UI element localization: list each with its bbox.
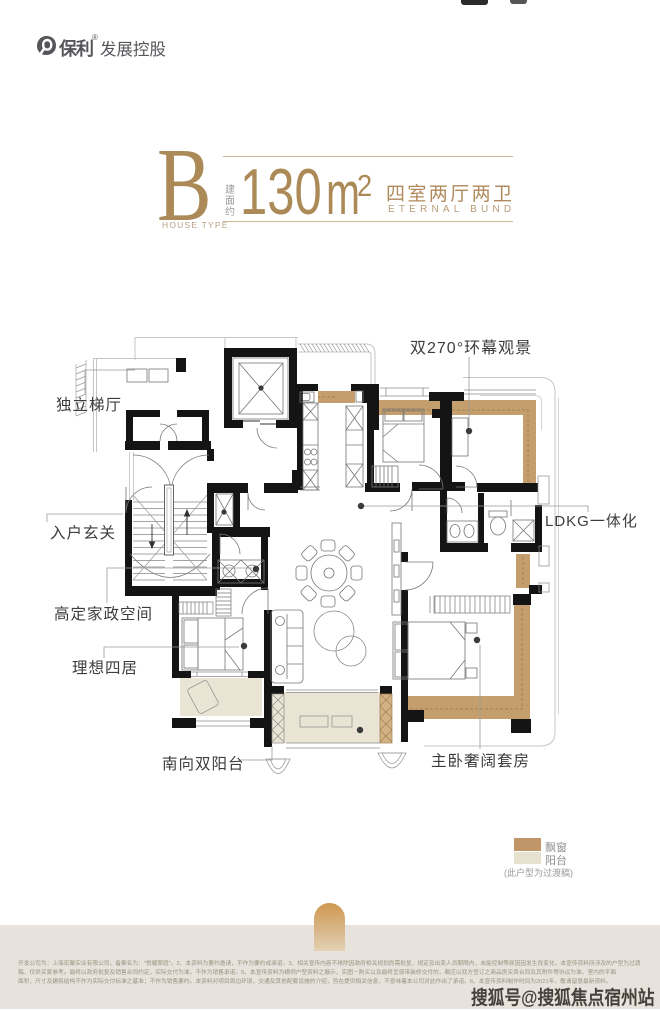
svg-text:南向双阳台: 南向双阳台 — [162, 755, 245, 773]
svg-text:主卧奢阔套房: 主卧奢阔套房 — [431, 752, 530, 770]
svg-text:理想四居: 理想四居 — [72, 659, 138, 677]
svg-text:高定家政空间: 高定家政空间 — [54, 605, 153, 623]
svg-text:独立梯厅: 独立梯厅 — [56, 396, 122, 414]
svg-text:LDKG一体化: LDKG一体化 — [545, 513, 638, 530]
svg-text:双270°环幕观景: 双270°环幕观景 — [410, 339, 532, 357]
svg-text:入户玄关: 入户玄关 — [50, 524, 116, 542]
